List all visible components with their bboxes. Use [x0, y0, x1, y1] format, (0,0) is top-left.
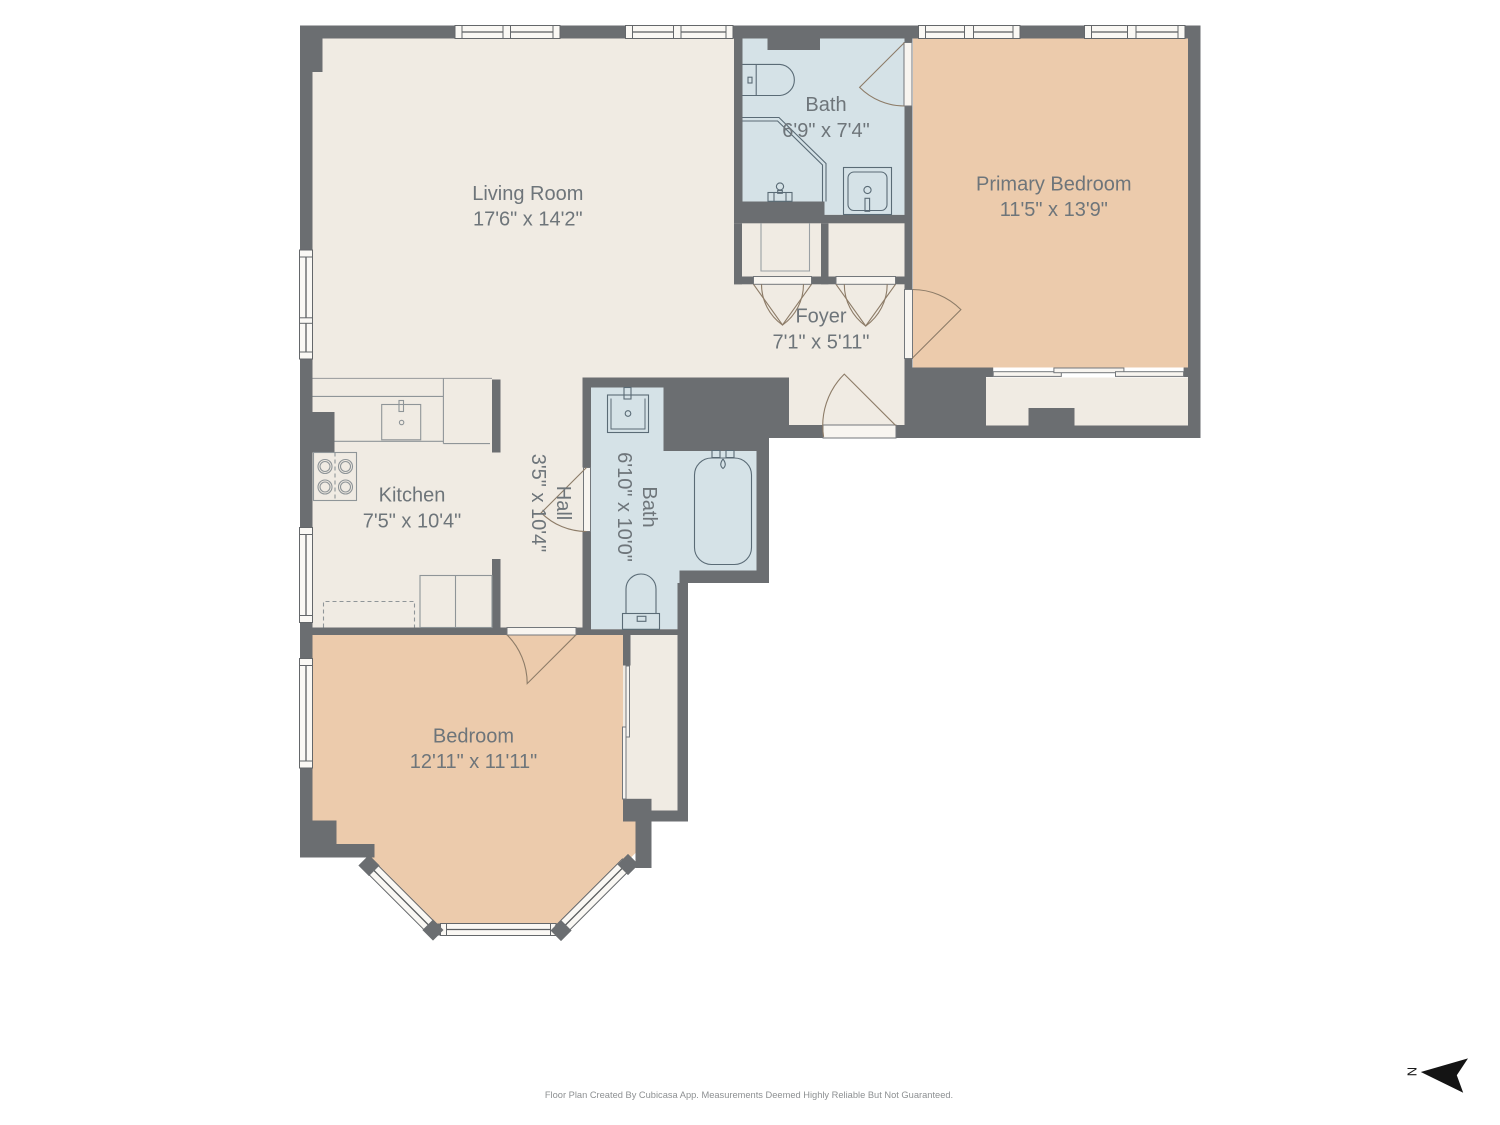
svg-text:17'6" x 14'2": 17'6" x 14'2"	[473, 209, 583, 231]
svg-text:12'11" x 11'11": 12'11" x 11'11"	[410, 751, 537, 773]
svg-text:7'1" x 5'11": 7'1" x 5'11"	[772, 332, 869, 354]
svg-text:7'5" x 10'4": 7'5" x 10'4"	[363, 511, 462, 533]
svg-text:Living Room: Living Room	[472, 183, 583, 205]
svg-text:Floor Plan Created By Cubicasa: Floor Plan Created By Cubicasa App. Meas…	[545, 1090, 953, 1100]
svg-text:Bath: Bath	[638, 486, 660, 527]
svg-text:Hall: Hall	[552, 486, 574, 520]
svg-text:Foyer: Foyer	[795, 306, 846, 328]
svg-text:Bedroom: Bedroom	[433, 726, 514, 748]
svg-text:3'5" x 10'4": 3'5" x 10'4"	[527, 454, 549, 553]
svg-text:11'5" x 13'9": 11'5" x 13'9"	[1000, 199, 1108, 221]
svg-text:6'10" x 10'0": 6'10" x 10'0"	[613, 452, 635, 562]
svg-text:Bath: Bath	[805, 94, 846, 116]
svg-text:N: N	[1405, 1067, 1420, 1076]
svg-text:6'9" x 7'4": 6'9" x 7'4"	[782, 120, 869, 142]
svg-text:Kitchen: Kitchen	[379, 485, 446, 507]
svg-text:Primary Bedroom: Primary Bedroom	[976, 174, 1132, 196]
